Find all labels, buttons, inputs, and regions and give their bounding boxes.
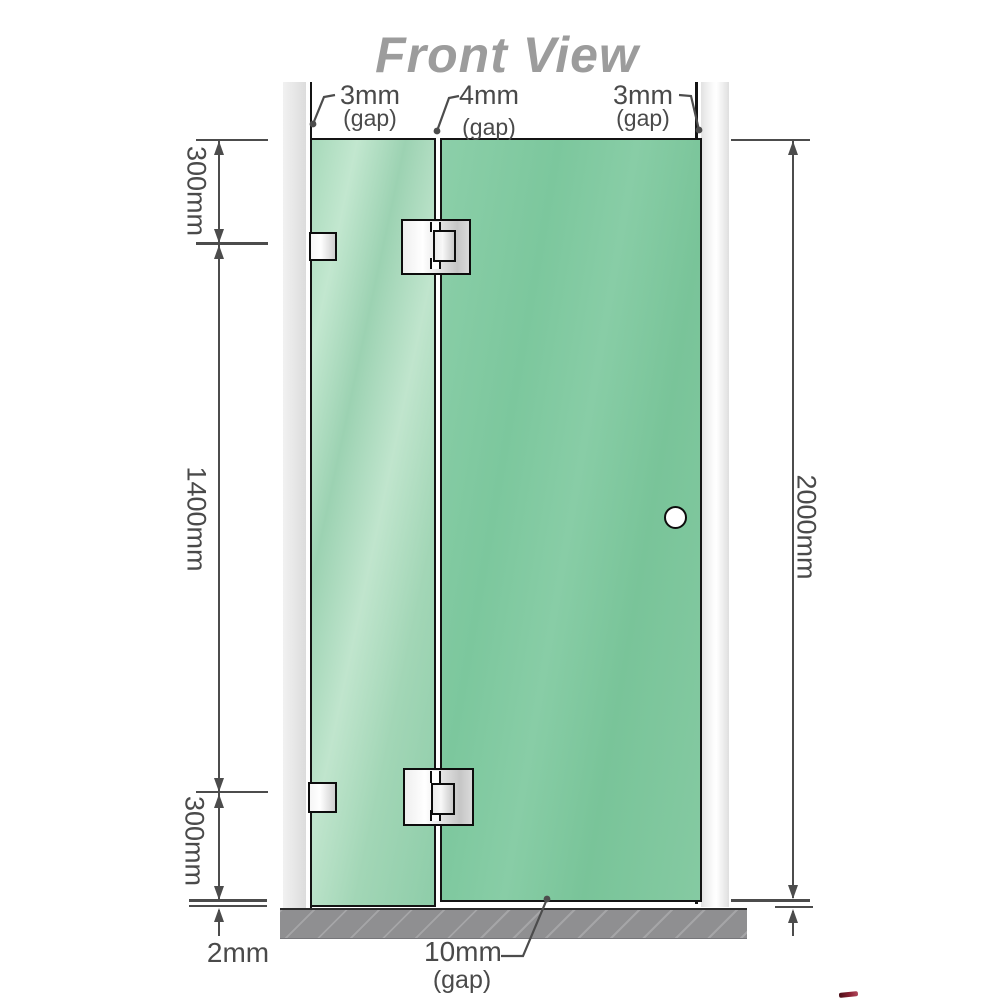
right-tick-floor [775, 906, 813, 908]
dim-label-2mm: 2mm [207, 937, 269, 969]
left-tick-floor [189, 905, 267, 907]
arrow-down-1400 [214, 778, 224, 792]
page-title: Front View [347, 26, 667, 84]
right-tick-top [731, 139, 810, 141]
left-channel-edge-line [310, 82, 313, 140]
arrow-down-2000 [788, 885, 798, 899]
right-channel-edge-line [695, 82, 698, 140]
arrow-up-2000 [788, 141, 798, 155]
arrow-up-bottom-gap [788, 909, 798, 923]
logo-sliver [839, 991, 858, 998]
gap-label-bottom: 10mm (gap) [424, 938, 500, 993]
floor-bar [280, 908, 747, 939]
gap-value: 10mm [424, 938, 500, 966]
bottom-hinge-gap-stub-upper [430, 771, 441, 783]
top-hinge-clamp-tab [433, 230, 456, 262]
dim-label-2000mm: 2000mm [791, 474, 822, 579]
gap-value: 4mm [447, 82, 531, 109]
arrow-up-1400 [214, 245, 224, 259]
gap-suffix: (gap) [603, 107, 683, 130]
dim-label-1400mm: 1400mm [181, 466, 212, 571]
wall-bracket-top [309, 232, 337, 261]
left-tick-top [196, 139, 268, 141]
left-tick-glass-bottom [189, 899, 267, 901]
gap-label-top-right: 3mm (gap) [603, 82, 683, 130]
gap-suffix: (gap) [424, 968, 500, 993]
arrow-up-300-bottom [214, 794, 224, 808]
dim-label-300mm-top: 300mm [181, 146, 212, 236]
left-tick-hinge-top [196, 242, 268, 244]
left-wall-channel [283, 82, 306, 908]
right-tick-glass-bottom [731, 899, 810, 901]
gap-suffix: (gap) [447, 116, 531, 139]
wall-bracket-bottom [308, 782, 337, 813]
gap-suffix: (gap) [330, 107, 410, 130]
bottom-hinge-clamp-tab [431, 783, 455, 815]
right-wall-channel [701, 82, 729, 907]
gap-label-top-middle: 4mm (gap) [447, 82, 531, 139]
arrow-up-2mm [214, 908, 224, 922]
dim-label-300mm-bottom: 300mm [179, 796, 210, 886]
arrow-up-300-top [214, 141, 224, 155]
door-knob [664, 506, 687, 529]
arrow-down-300-top [214, 229, 224, 243]
door-glass-panel [440, 138, 702, 902]
left-tick-hinge-bottom [196, 791, 268, 793]
gap-label-top-left: 3mm (gap) [330, 82, 410, 130]
shower-screen-front-view-diagram: Front View 300mm 1400mm 300mm 2mm [0, 0, 1000, 1000]
arrow-down-300-bottom [214, 886, 224, 900]
